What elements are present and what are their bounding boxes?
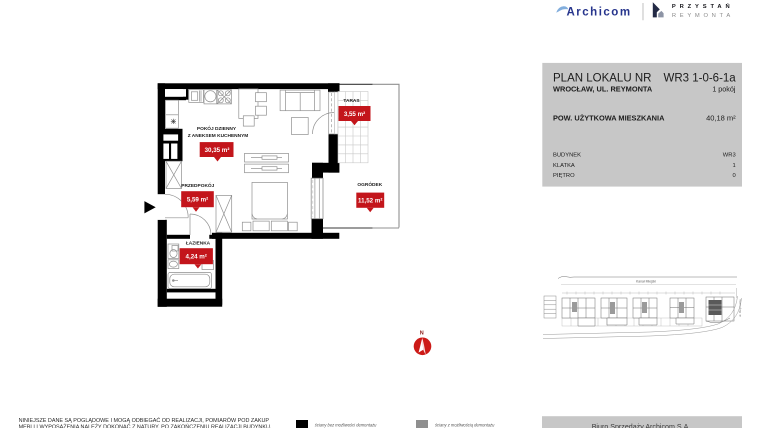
svg-text:11,52 m²: 11,52 m² xyxy=(358,198,382,205)
svg-text:NINIEJSZE DANE SĄ POGLĄDOWE I: NINIEJSZE DANE SĄ POGLĄDOWE I MOGĄ ODBIE… xyxy=(19,417,270,424)
svg-text:WR3 1-0-6-1a: WR3 1-0-6-1a xyxy=(663,73,736,85)
svg-text:ściany bez możliwości demontaż: ściany bez możliwości demontażu xyxy=(315,422,377,427)
svg-text:TARAS: TARAS xyxy=(343,98,360,104)
svg-text:3,55 m²: 3,55 m² xyxy=(344,111,365,118)
svg-text:1 pokój: 1 pokój xyxy=(712,85,736,94)
svg-text:ul. Reymonta: ul. Reymonta xyxy=(738,299,742,317)
svg-text:BUDYNEK: BUDYNEK xyxy=(553,153,581,159)
svg-text:KLATKA: KLATKA xyxy=(553,163,575,169)
svg-text:40,18 m²: 40,18 m² xyxy=(706,113,736,122)
svg-text:WROCŁAW, UL. REYMONTA: WROCŁAW, UL. REYMONTA xyxy=(553,84,653,93)
svg-text:4,24 m²: 4,24 m² xyxy=(186,254,207,261)
svg-text:ściany z możliwością demontażu: ściany z możliwością demontażu xyxy=(435,422,495,427)
svg-text:1: 1 xyxy=(732,163,735,169)
svg-text:ŁAZIENKA: ŁAZIENKA xyxy=(186,241,211,247)
svg-text:POW. UŻYTKOWA MIESZKANIA: POW. UŻYTKOWA MIESZKANIA xyxy=(553,113,665,122)
svg-text:PRZYSTAŃ: PRZYSTAŃ xyxy=(672,2,734,10)
svg-text:5,59 m²: 5,59 m² xyxy=(187,197,208,204)
svg-text:N: N xyxy=(420,331,424,337)
svg-text:PLAN LOKALU NR: PLAN LOKALU NR xyxy=(553,73,651,85)
svg-text:MEBLI I WYPOSAŻENIA NALEŻY DOK: MEBLI I WYPOSAŻENIA NALEŻY DOKONAĆ Z NAT… xyxy=(19,423,272,428)
svg-text:Archicom: Archicom xyxy=(567,7,632,19)
svg-text:OGRÓDEK: OGRÓDEK xyxy=(357,180,382,188)
svg-text:WR3: WR3 xyxy=(723,153,736,159)
svg-text:Z ANEKSEM KUCHENNYM: Z ANEKSEM KUCHENNYM xyxy=(188,133,249,139)
svg-text:Kanał Miejski: Kanał Miejski xyxy=(636,280,656,284)
svg-text:REYMONTA: REYMONTA xyxy=(672,13,734,19)
svg-text:30,35 m²: 30,35 m² xyxy=(205,147,230,154)
svg-text:PIĘTRO: PIĘTRO xyxy=(553,173,575,179)
svg-text:Biuro Sprzedaży Archicom S.A.: Biuro Sprzedaży Archicom S.A. xyxy=(592,423,691,428)
svg-text:0: 0 xyxy=(732,173,735,179)
